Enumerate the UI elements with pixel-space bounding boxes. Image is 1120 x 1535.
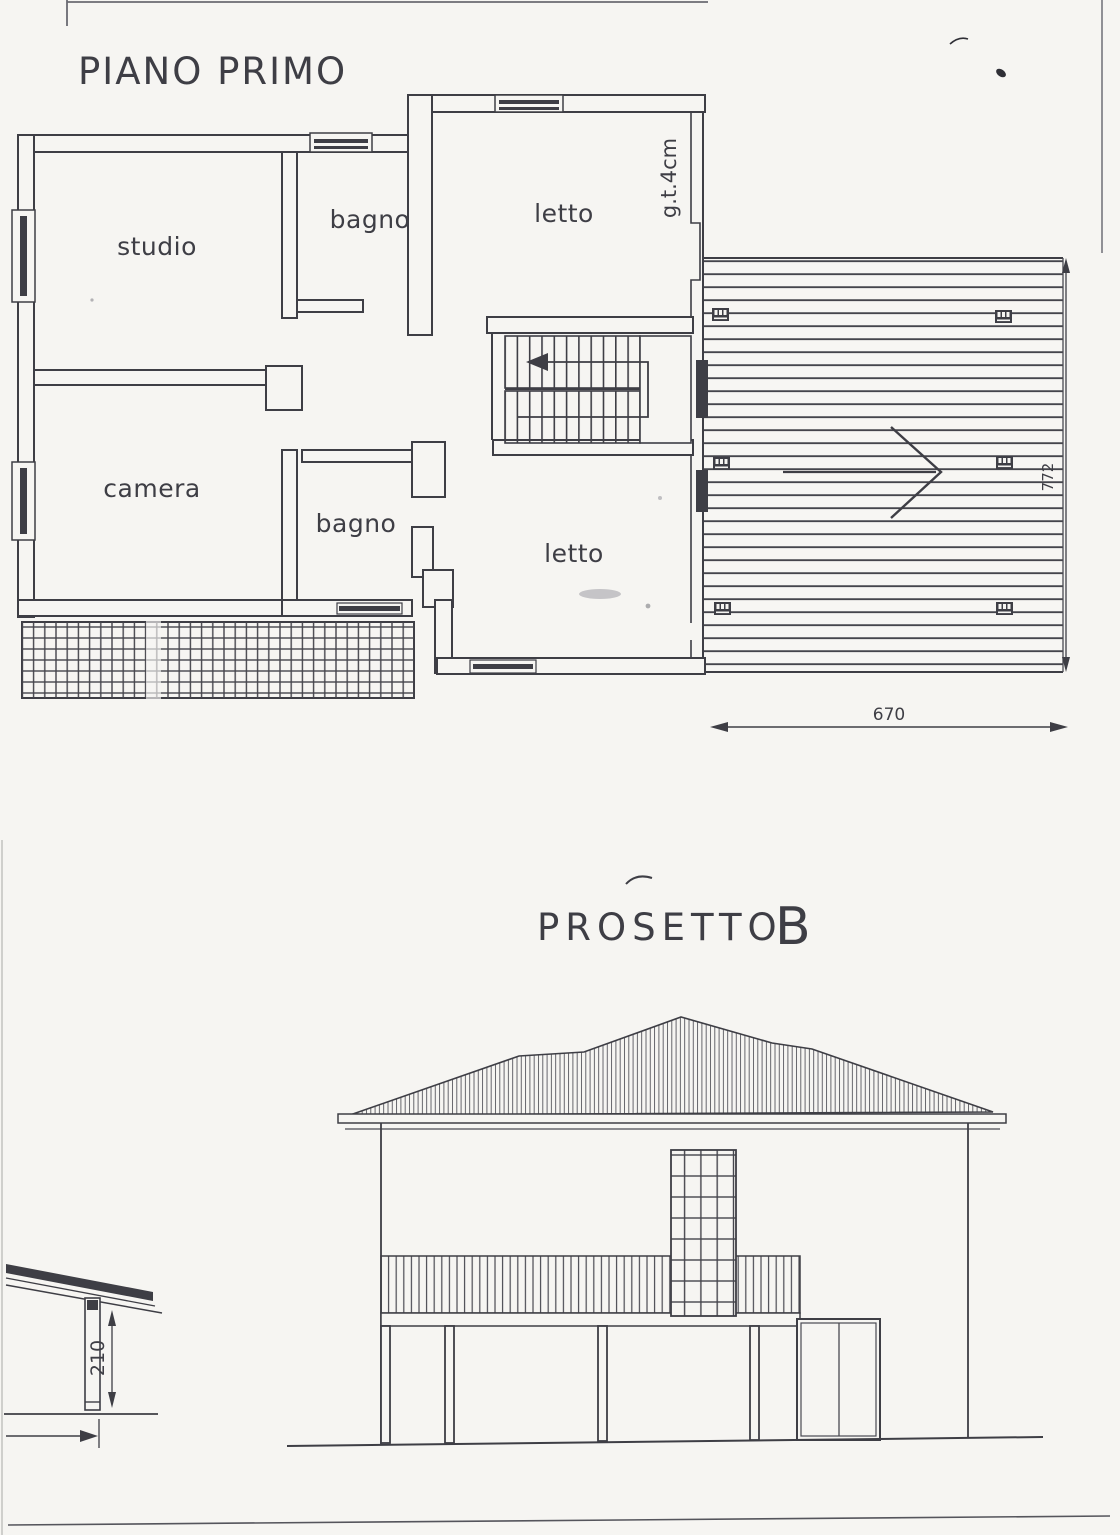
wall-bottom-left-block <box>18 600 292 616</box>
terrace-eraser-streak <box>146 620 161 700</box>
wall-bagno-bottom-top <box>302 450 412 462</box>
window-letto-bottom <box>470 660 536 673</box>
elevation-title: PROSETTO <box>537 906 783 949</box>
balcony <box>381 1256 800 1326</box>
wall-studio-bagno-divider <box>282 152 297 318</box>
elevation-b: PROSETTO B <box>8 897 1110 1525</box>
smudge-dot-2 <box>658 496 662 500</box>
staircase <box>492 333 691 443</box>
pillar-1 <box>381 1326 390 1443</box>
dim-210-arrow-up <box>108 1310 116 1326</box>
stairwell-grid-window <box>671 1150 736 1316</box>
window-bagno-bottom <box>337 603 402 614</box>
deck-door-bar-lower <box>696 470 708 512</box>
deck-width-dimension: 670 <box>710 705 1068 732</box>
page-bottom-line <box>8 1516 1110 1525</box>
porch-pillars <box>381 1326 759 1443</box>
pillar-4 <box>750 1326 759 1440</box>
ink-blob <box>994 67 1007 79</box>
roof-fascia-band <box>338 1114 1006 1123</box>
room-label-letto-top: letto <box>534 199 594 228</box>
detail-reference-arrow <box>6 1419 99 1448</box>
roof-hatched-surface <box>350 1017 993 1115</box>
tiled-terrace <box>22 620 414 700</box>
smudge-dot <box>646 604 651 609</box>
room-label-camera: camera <box>103 474 200 503</box>
wall-studio-camera-divider <box>34 370 268 385</box>
wall-divider-pillar <box>266 366 302 410</box>
elevation-roof <box>338 1017 1006 1129</box>
stray-pen-mark <box>626 876 652 884</box>
wall-hall-tee <box>412 442 445 497</box>
deck-depth-value: 772 <box>1039 463 1057 492</box>
roof-underside-line-2 <box>6 1285 162 1313</box>
elevation-ground-line <box>287 1437 1043 1446</box>
wall-bagno-ledge <box>297 300 363 312</box>
annex-door <box>797 1319 880 1440</box>
dim-arrowhead-right <box>1050 722 1068 732</box>
wood-deck: 772 <box>703 258 1070 672</box>
deck-width-value: 670 <box>873 705 905 725</box>
window-bagno-top <box>310 133 372 152</box>
balcony-slab <box>381 1313 800 1326</box>
carport-detail: 210 <box>4 1264 162 1448</box>
wall-stairs-top <box>487 317 693 333</box>
post-height-value: 210 <box>87 1340 109 1376</box>
wall-thickness-note: g.t.4cm <box>657 138 681 218</box>
room-label-studio: studio <box>117 232 197 261</box>
blueprint-canvas: PIANO PRIMO <box>0 0 1120 1535</box>
ink-scratch <box>950 38 968 44</box>
elevation-title-letter: B <box>775 897 811 957</box>
pillar-3 <box>598 1326 607 1441</box>
paper-speck <box>90 298 93 301</box>
wall-left-outer <box>18 135 34 617</box>
deck-door-bar-upper <box>696 360 708 418</box>
window-studio-left <box>12 210 35 302</box>
dim-210-arrow-down <box>108 1392 116 1408</box>
ref-arrowhead <box>80 1430 98 1442</box>
window-camera-left <box>12 462 35 540</box>
floor-plan-title: PIANO PRIMO <box>78 50 347 93</box>
smudge-mark <box>579 589 621 599</box>
post-top-bracket <box>87 1300 98 1310</box>
room-label-bagno-bottom: bagno <box>316 509 397 538</box>
wall-main-left-upper <box>408 95 432 335</box>
room-label-bagno-top: bagno <box>330 205 411 234</box>
pillar-2 <box>445 1326 454 1443</box>
balcony-railing <box>381 1256 800 1313</box>
wall-bagno-bottom-left <box>282 450 297 612</box>
dim-arrowhead-left <box>710 722 728 732</box>
window-letto-top <box>495 95 563 112</box>
wall-right-inner-upper <box>691 112 700 318</box>
scanned-blueprint-page: PIANO PRIMO <box>0 0 1120 1535</box>
room-label-letto-bottom: letto <box>544 539 604 568</box>
floor-plan: PIANO PRIMO <box>12 50 1070 732</box>
